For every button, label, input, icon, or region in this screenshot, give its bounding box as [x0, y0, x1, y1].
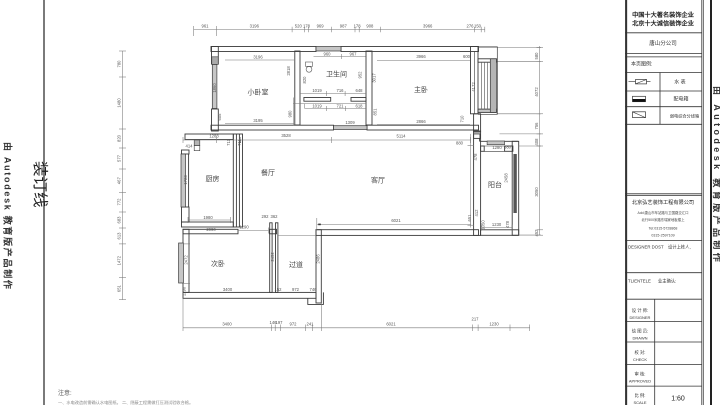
svg-text:613: 613 [116, 232, 121, 240]
svg-text:178: 178 [354, 23, 362, 28]
svg-text:1280: 1280 [492, 145, 502, 150]
svg-text:1723: 1723 [183, 175, 188, 185]
svg-text:967: 967 [350, 51, 358, 56]
svg-text:5114: 5114 [396, 133, 406, 138]
svg-text:960: 960 [324, 51, 332, 56]
svg-text:设 计 师:: 设 计 师: [632, 307, 648, 314]
svg-text:3050: 3050 [534, 187, 539, 197]
svg-text:唐山分公司: 唐山分公司 [649, 39, 677, 47]
svg-text:478: 478 [505, 220, 510, 228]
svg-text:1290: 1290 [182, 286, 187, 296]
svg-text:820: 820 [302, 76, 307, 84]
svg-text:716: 716 [337, 88, 345, 93]
svg-text:北京十大诚信装饰企业: 北京十大诚信装饰企业 [632, 20, 694, 28]
svg-text:241: 241 [307, 321, 315, 326]
svg-text:651: 651 [467, 214, 472, 222]
svg-text:380: 380 [504, 145, 512, 150]
svg-text:152: 152 [275, 287, 283, 292]
svg-text:4172: 4172 [471, 82, 476, 92]
svg-text:987: 987 [340, 23, 348, 28]
svg-text:Tel:0315-5728868: Tel:0315-5728868 [649, 227, 678, 231]
svg-text:952: 952 [358, 71, 363, 79]
svg-text:2452: 2452 [270, 252, 275, 262]
svg-text:DESIGNER: DESIGNER [630, 315, 651, 320]
svg-text:由 Autodesk 教育版产品制作: 由 Autodesk 教育版产品制作 [3, 142, 14, 291]
svg-text:217: 217 [472, 317, 480, 322]
svg-text:弱电综合分线箱: 弱电综合分线箱 [670, 112, 699, 119]
svg-text:851: 851 [373, 108, 378, 116]
svg-text:2472: 2472 [184, 255, 189, 265]
svg-text:880: 880 [456, 141, 464, 146]
svg-text:197: 197 [276, 320, 284, 325]
svg-text:780: 780 [116, 60, 121, 68]
svg-text:2866: 2866 [416, 119, 426, 124]
svg-text:414: 414 [186, 144, 194, 149]
svg-text:478: 478 [473, 153, 478, 161]
svg-text:1050: 1050 [480, 220, 485, 230]
svg-text:1980: 1980 [203, 215, 213, 220]
svg-text:APPROVED: APPROVED [629, 379, 651, 384]
svg-text:3196: 3196 [250, 23, 260, 28]
svg-text:908: 908 [366, 23, 374, 28]
svg-text:设计上栋人,: 设计上栋人, [668, 244, 691, 251]
svg-text:710: 710 [460, 115, 465, 123]
svg-text:756: 756 [534, 122, 539, 130]
svg-text:本页图例:: 本页图例: [631, 60, 652, 67]
svg-text:配电箱: 配电箱 [673, 96, 688, 103]
svg-text:1019: 1019 [312, 88, 322, 93]
svg-text:605: 605 [217, 113, 222, 121]
svg-text:577: 577 [116, 154, 121, 162]
svg-text:1290: 1290 [239, 224, 249, 229]
svg-text:2090: 2090 [206, 227, 216, 232]
svg-text:3017: 3017 [372, 73, 377, 83]
svg-text:中国十大著名装饰企业: 中国十大著名装饰企业 [632, 11, 694, 19]
svg-text:注意:: 注意: [58, 389, 72, 397]
svg-text:阳台: 阳台 [488, 180, 502, 189]
svg-text:412: 412 [474, 209, 479, 217]
svg-text:CHECK: CHECK [633, 357, 647, 362]
svg-text:520: 520 [295, 23, 303, 28]
svg-text:2818: 2818 [286, 66, 291, 76]
svg-text:餐厅: 餐厅 [261, 168, 275, 177]
svg-text:装订线: 装订线 [31, 161, 49, 208]
svg-text:600: 600 [463, 54, 471, 59]
svg-text:3196: 3196 [253, 55, 263, 60]
svg-text:972: 972 [292, 287, 300, 292]
svg-text:卫生间: 卫生间 [326, 70, 347, 79]
svg-text:2486: 2486 [316, 254, 321, 264]
svg-text:618: 618 [356, 103, 364, 108]
svg-text:北行500米路东瑞家地板楼上: 北行500米路东瑞家地板楼上 [642, 217, 686, 222]
svg-text:711: 711 [237, 138, 242, 145]
svg-text:452: 452 [534, 229, 539, 237]
svg-text:1472: 1472 [116, 255, 121, 265]
svg-text:4072: 4072 [534, 87, 539, 97]
svg-text:由 Autodesk 教育版产品制作: 由 Autodesk 教育版产品制作 [712, 86, 720, 265]
svg-text:3400: 3400 [223, 287, 233, 292]
svg-text:1:60: 1:60 [671, 396, 685, 403]
svg-text:3400: 3400 [222, 321, 232, 326]
svg-text:水 表: 水 表 [674, 79, 685, 86]
svg-text:客厅: 客厅 [371, 176, 385, 185]
svg-text:467: 467 [116, 177, 121, 185]
svg-text:651: 651 [116, 284, 121, 292]
svg-text:SCALE: SCALE [633, 400, 646, 405]
svg-text:292: 292 [262, 214, 270, 219]
svg-text:711: 711 [226, 138, 231, 145]
svg-text:648: 648 [356, 88, 364, 93]
svg-text:厨房: 厨房 [206, 174, 220, 183]
svg-text:1860: 1860 [212, 83, 217, 93]
svg-text:主卧: 主卧 [414, 85, 428, 94]
svg-text:969: 969 [317, 23, 325, 28]
svg-text:6021: 6021 [391, 218, 401, 223]
svg-text:1480: 1480 [116, 98, 121, 108]
svg-text:2458: 2458 [504, 173, 509, 183]
svg-text:北京弘艺装饰工程有限公司: 北京弘艺装饰工程有限公司 [632, 198, 694, 206]
svg-text:1230: 1230 [492, 222, 502, 227]
svg-text:961: 961 [202, 23, 210, 28]
svg-text:3966: 3966 [416, 54, 426, 59]
svg-text:3966: 3966 [423, 23, 433, 28]
svg-text:审 核:: 审 核: [635, 371, 646, 378]
svg-text:一、水电改造前需确认水电图纸。 二、隐蔽工程需做打压测试验: 一、水电改造前需确认水电图纸。 二、隐蔽工程需做打压测试验收合格。 [58, 399, 193, 405]
svg-text:178: 178 [303, 23, 311, 28]
svg-text:1230: 1230 [489, 321, 499, 326]
svg-text:580: 580 [534, 52, 539, 60]
svg-text:3528: 3528 [281, 133, 291, 138]
svg-text:0315-2597109: 0315-2597109 [651, 233, 674, 237]
svg-text:DRAWN: DRAWN [633, 336, 648, 341]
svg-text:746: 746 [310, 287, 318, 292]
svg-text:980: 980 [287, 110, 292, 118]
svg-text:1309: 1309 [345, 120, 355, 125]
svg-text:业主确认:: 业主确认: [658, 278, 676, 285]
svg-text:小卧室: 小卧室 [248, 88, 269, 97]
svg-text:972: 972 [290, 321, 298, 326]
svg-text:Add:唐山市车站路与卫国路交汇口: Add:唐山市车站路与卫国路交汇口 [637, 210, 688, 215]
svg-text:276: 276 [467, 23, 475, 28]
svg-text:DESIGNER DOST: DESIGNER DOST [628, 245, 664, 250]
svg-text:820: 820 [116, 134, 121, 142]
svg-text:408: 408 [534, 138, 539, 146]
svg-text:校 对:: 校 对: [635, 349, 646, 356]
svg-text:772: 772 [116, 198, 121, 206]
svg-text:683: 683 [116, 216, 121, 224]
svg-text:过道: 过道 [289, 260, 303, 269]
svg-text:721: 721 [337, 103, 345, 108]
svg-text:362: 362 [271, 214, 279, 219]
svg-text:6021: 6021 [386, 321, 396, 326]
svg-text:3195: 3195 [253, 118, 263, 123]
svg-text:比 例:: 比 例: [635, 392, 646, 399]
svg-text:150: 150 [474, 23, 482, 28]
svg-text:TLIENTELE: TLIENTELE [628, 279, 651, 284]
svg-text:绘 图 员:: 绘 图 员: [632, 328, 648, 335]
svg-text:次卧: 次卧 [211, 259, 225, 268]
svg-text:1019: 1019 [312, 103, 322, 108]
svg-text:1288: 1288 [209, 134, 219, 139]
